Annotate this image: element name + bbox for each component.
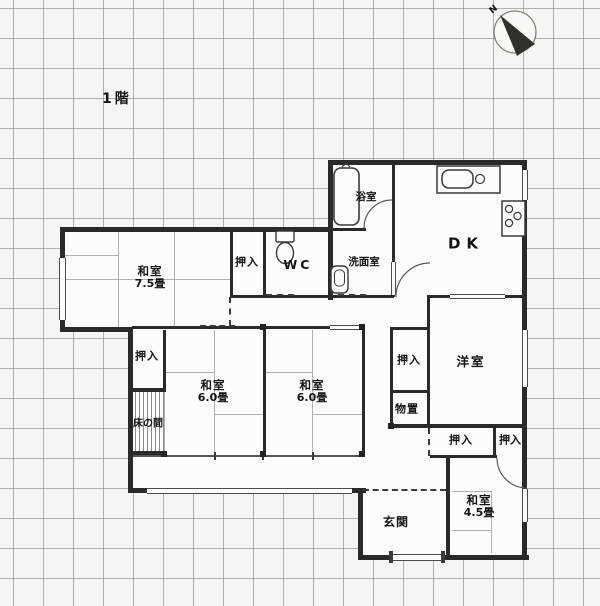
wall-interior [128, 388, 166, 392]
label-oshiire-wc: 押入 [235, 257, 259, 270]
wall-interior [362, 327, 365, 457]
label-senmenshitsu: 洗面室 [348, 256, 380, 268]
wall-interior [493, 425, 496, 458]
label-washitsu-4-5: 和室 4.5畳 [464, 494, 495, 520]
label-dk: DK [448, 235, 484, 252]
label-genkan: 玄関 [383, 516, 409, 530]
floor-plan: 1階 [0, 0, 600, 606]
wall-interior [390, 327, 430, 330]
room-dk [395, 165, 522, 297]
wall-interior [390, 390, 430, 393]
compass-north-label: N [488, 4, 500, 17]
wall-interior [390, 327, 393, 427]
label-washitsu-6-0-left: 和室 6.0畳 [198, 379, 229, 405]
window [522, 170, 528, 200]
label-yokushitsu: 浴室 [356, 191, 377, 203]
window [522, 489, 528, 522]
floor-title: 1階 [102, 88, 132, 108]
post [388, 423, 394, 429]
compass-icon [494, 11, 536, 56]
floor-area-hallway [198, 293, 432, 329]
tokonoma-edge [164, 392, 165, 452]
label-monooki: 物置 [395, 404, 419, 417]
label-oshiire-south1: 押入 [449, 435, 473, 448]
label-oshiire-mid: 押入 [135, 351, 159, 364]
window [522, 330, 528, 387]
label-washitsu-6-0-right: 和室 6.0畳 [297, 379, 328, 405]
wall-interior [230, 230, 233, 297]
label-tokonoma: 床の間 [133, 418, 163, 430]
label-washitsu-7-5: 和室 7.5畳 [135, 265, 166, 291]
wall-exterior [128, 327, 133, 493]
label-oshiire-south2: 押入 [499, 435, 521, 448]
window [147, 488, 352, 494]
label-yoshitsu: 洋室 [456, 355, 485, 369]
label-oshiire-yoshitsu: 押入 [397, 355, 421, 368]
hall-opening [428, 428, 430, 456]
wall-interior [230, 295, 394, 298]
wall-exterior [60, 327, 132, 332]
entrance-door [391, 554, 443, 561]
label-wc: WC [284, 258, 313, 272]
